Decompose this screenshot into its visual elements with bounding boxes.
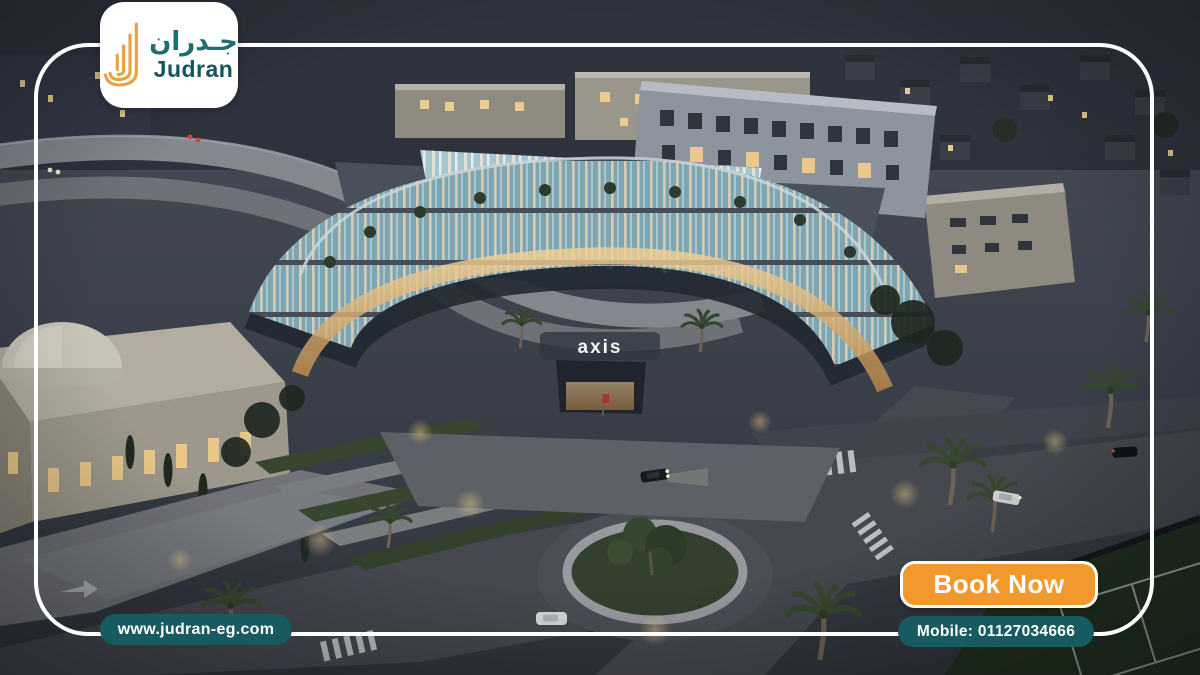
flyer-canvas: axis	[0, 0, 1200, 675]
brand-logo-card: جـدران Judran	[100, 2, 238, 108]
brand-name-english: Judran	[154, 58, 234, 81]
website-badge[interactable]: www.judran-eg.com	[100, 614, 292, 645]
book-now-button[interactable]: Book Now	[900, 561, 1098, 608]
brand-name-arabic: جـدران	[149, 29, 238, 55]
mobile-badge[interactable]: Mobile: 01127034666	[898, 616, 1094, 647]
judran-walls-icon	[100, 18, 140, 92]
brand-wordmark: جـدران Judran	[149, 29, 238, 81]
